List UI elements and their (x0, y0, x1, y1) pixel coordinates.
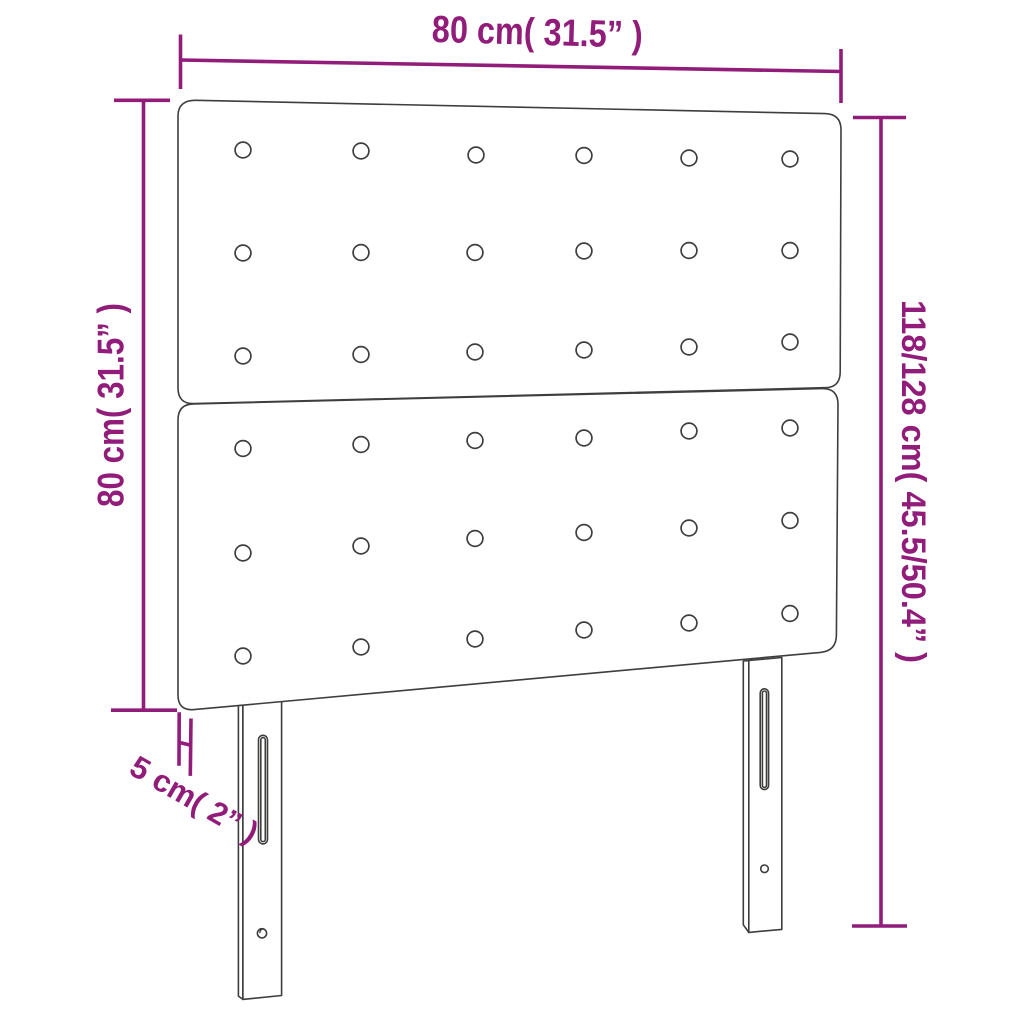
svg-text:118/128 cm( 45.5/50.4” ): 118/128 cm( 45.5/50.4” ) (894, 300, 932, 663)
svg-text:80 cm( 31.5” ): 80 cm( 31.5” ) (431, 9, 643, 57)
svg-text:80 cm( 31.5” ): 80 cm( 31.5” ) (91, 303, 132, 507)
